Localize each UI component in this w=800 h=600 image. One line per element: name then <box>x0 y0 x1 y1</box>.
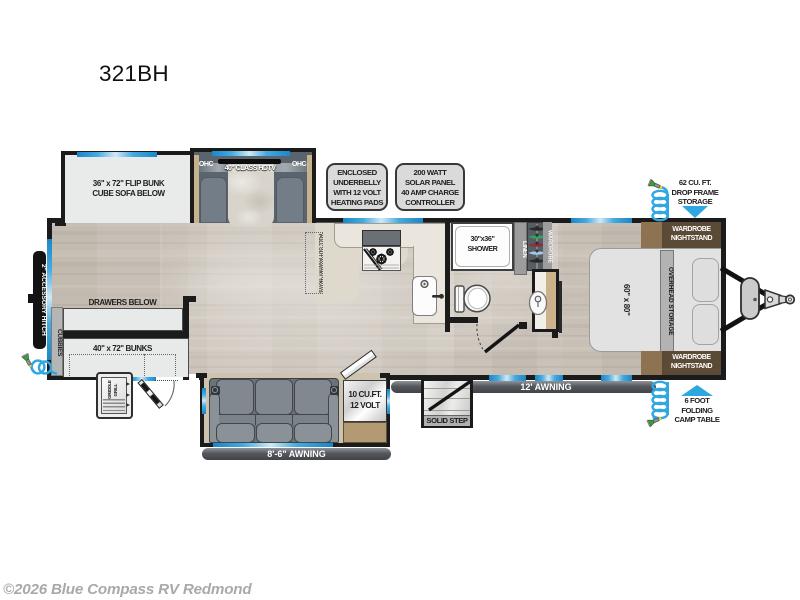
svg-text:GRIDDLE: GRIDDLE <box>107 380 112 399</box>
svg-text:GRILL: GRILL <box>113 383 118 396</box>
